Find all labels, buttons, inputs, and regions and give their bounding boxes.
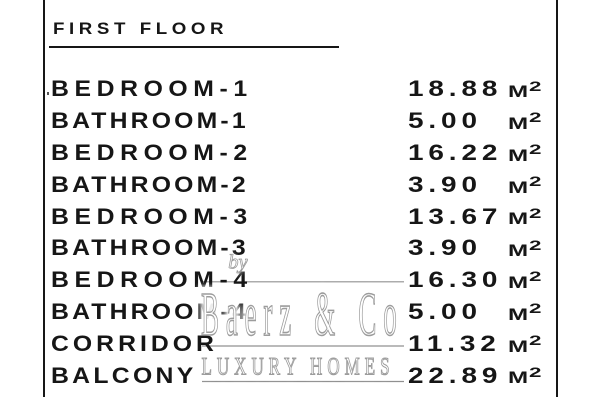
svg-text:by: by [228,251,248,273]
svg-text:LUXURY HOMES: LUXURY HOMES [202,352,395,380]
svg-text:Baerz & Co: Baerz & Co [201,280,404,349]
